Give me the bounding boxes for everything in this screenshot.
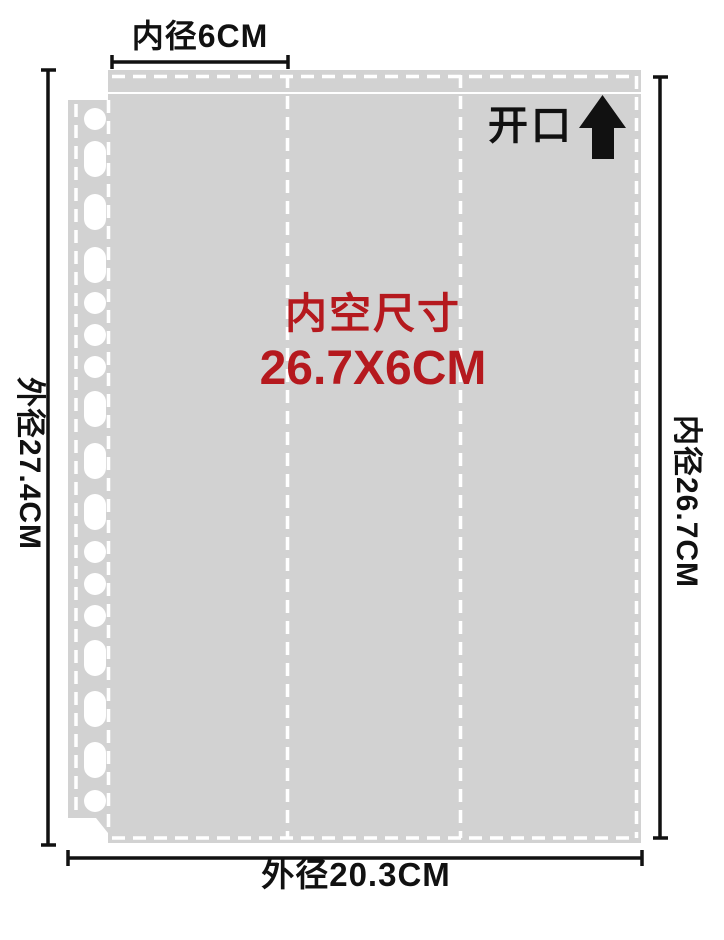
hole-round (84, 790, 106, 812)
hole-oblong (84, 194, 106, 230)
hole-round (84, 573, 106, 595)
label-outer-width: 外径20.3CM (206, 858, 506, 891)
label-opening: 开口 (488, 106, 574, 146)
hole-round (84, 292, 106, 314)
inner-size-title: 内空尺寸 (240, 293, 506, 335)
label-inner-height: 内径26.7CM (665, 415, 701, 575)
hole-oblong (84, 141, 106, 177)
hole-round (84, 324, 106, 346)
hole-round (84, 356, 106, 378)
hole-oblong (84, 391, 106, 427)
hole-round (84, 108, 106, 130)
hole-oblong (84, 494, 106, 530)
hole-oblong (84, 640, 106, 676)
sheet-graphic (0, 0, 724, 940)
inner-size-label: 内空尺寸 26.7X6CM (240, 293, 506, 393)
punch-holes (84, 108, 106, 812)
hole-round (84, 541, 106, 563)
hole-oblong (84, 742, 106, 778)
label-outer-height: 外径27.4CM (6, 377, 44, 539)
hole-oblong (84, 691, 106, 727)
inner-size-value: 26.7X6CM (240, 345, 506, 393)
hole-oblong (84, 443, 106, 479)
sheet-body (108, 70, 641, 843)
hole-oblong (84, 247, 106, 283)
hole-round (84, 605, 106, 627)
label-inner-width: 内径6CM (100, 20, 300, 52)
product-diagram: 内径6CM 外径27.4CM 内径26.7CM 外径20.3CM 开口 内空尺寸… (0, 0, 724, 940)
